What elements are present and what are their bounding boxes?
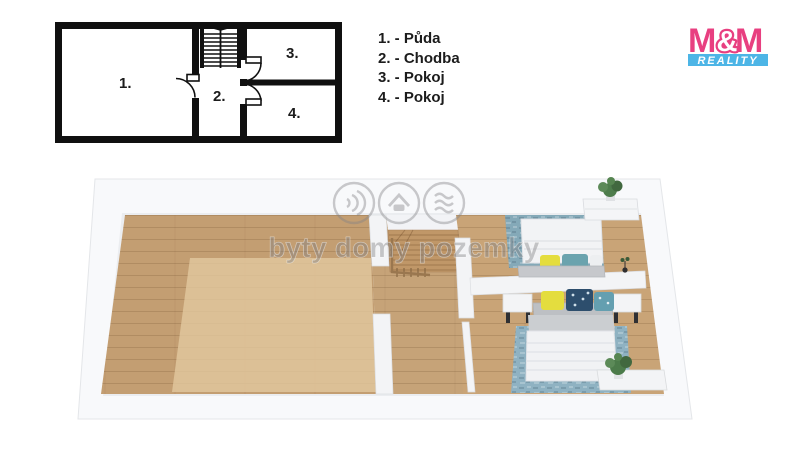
attic-floor-light-patch [172, 258, 376, 392]
floor-plan-2d: 1. 2. 3. 4. [50, 15, 350, 150]
logo-reality-text: REALITY [697, 55, 758, 66]
room-label-3: 3. [286, 45, 299, 62]
blanket-band [528, 315, 615, 333]
listing-floorplan-image: 1. 2. 3. 4. 1. - Půda 2. - Chodba 3. - P… [0, 0, 800, 450]
room-legend: 1. - Půda 2. - Chodba 3. - Pokoj 4. - Po… [378, 29, 460, 107]
wall-attic-hall-lower [373, 314, 393, 394]
room-label-2: 2. [213, 88, 226, 105]
legend-item-chodba: 2. - Chodba [378, 49, 460, 69]
bench [597, 370, 667, 390]
room-label-1: 1. [119, 75, 132, 92]
room-label-4: 4. [288, 105, 301, 122]
pillow-teal [594, 292, 614, 311]
legend-item-puda: 1. - Půda [378, 29, 460, 49]
dresser [583, 199, 639, 220]
legend-item-pokoj4: 4. - Pokoj [378, 88, 460, 108]
mm-reality-logo: M M & REALITY [688, 21, 768, 66]
pillow-navy [566, 289, 593, 311]
floor-plan-3d: byty domy pozemky [50, 170, 710, 430]
bedroom-bottom-bed [526, 289, 617, 381]
pillow-yellow [541, 291, 564, 310]
watermark-text: byty domy pozemky [268, 232, 540, 263]
legend-item-pokoj3: 3. - Pokoj [378, 68, 460, 88]
bed-foot-bar [518, 266, 605, 277]
logo-ampersand: & [717, 26, 738, 58]
